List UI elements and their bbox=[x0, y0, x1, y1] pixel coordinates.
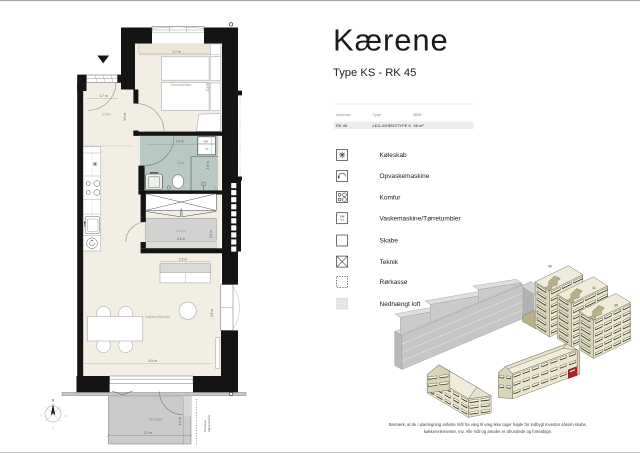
svg-text:Køleskab: Køleskab bbox=[380, 152, 407, 159]
svg-text:3.5 m: 3.5 m bbox=[123, 113, 127, 121]
svg-text:4.5 m: 4.5 m bbox=[149, 359, 157, 363]
svg-text:Opvaskemaskine: Opvaskemaskine bbox=[380, 173, 430, 180]
svg-text:Depot: Depot bbox=[176, 229, 186, 233]
svg-text:TT: TT bbox=[340, 219, 344, 223]
svg-text:1.7 m: 1.7 m bbox=[100, 94, 108, 98]
svg-text:Skabe: Skabe bbox=[380, 238, 399, 245]
svg-text:2.4 m: 2.4 m bbox=[177, 237, 185, 241]
svg-text:2.2 m: 2.2 m bbox=[209, 230, 213, 238]
svg-text:4.5 m: 4.5 m bbox=[210, 309, 214, 317]
svg-text:2.4 m: 2.4 m bbox=[176, 140, 184, 144]
svg-text:TT: TT bbox=[205, 147, 209, 151]
svg-text:Kærene: Kærene bbox=[333, 23, 449, 58]
svg-text:Terrasse: Terrasse bbox=[149, 418, 163, 422]
svg-text:S: S bbox=[52, 426, 54, 430]
svg-text:LEJLIGHEDSTYPE K: LEJLIGHEDSTYPE K bbox=[373, 123, 412, 128]
svg-text:V: V bbox=[40, 414, 42, 418]
svg-text:Bemærk, at de i plantegning an: Bemærk, at de i plantegning anførte mål … bbox=[389, 422, 587, 427]
svg-text:Entré: Entré bbox=[102, 113, 111, 117]
svg-text:2.7 m: 2.7 m bbox=[173, 50, 181, 54]
svg-text:2.5 m: 2.5 m bbox=[179, 257, 187, 261]
svg-text:Adresse: Adresse bbox=[336, 112, 351, 117]
svg-text:Vaskemaskine/Tørretumbler: Vaskemaskine/Tørretumbler bbox=[380, 215, 462, 222]
svg-text:VM: VM bbox=[203, 140, 208, 144]
svg-text:Bad: Bad bbox=[178, 161, 184, 165]
svg-text:Soveværelse: Soveværelse bbox=[171, 83, 192, 87]
svg-text:Ø: Ø bbox=[64, 414, 66, 418]
svg-text:66 m²: 66 m² bbox=[414, 123, 425, 128]
svg-text:39: 39 bbox=[614, 304, 618, 308]
svg-text:Type: Type bbox=[373, 112, 382, 117]
svg-text:40: 40 bbox=[548, 265, 552, 269]
svg-text:afgrænsning: afgrænsning bbox=[207, 415, 211, 432]
svg-text:Rørkasse: Rørkasse bbox=[380, 279, 408, 286]
svg-text:41: 41 bbox=[592, 286, 596, 290]
svg-text:køkkenelementer, mv. Alle mål: køkkenelementer, mv. Alle mål og arealer… bbox=[424, 429, 552, 434]
svg-text:Teknik: Teknik bbox=[380, 259, 399, 266]
svg-text:2.9 m: 2.9 m bbox=[206, 83, 210, 91]
svg-text:3.8 m: 3.8 m bbox=[206, 161, 210, 169]
svg-text:2.7 m: 2.7 m bbox=[144, 431, 152, 435]
svg-text:1.5 m: 1.5 m bbox=[178, 417, 182, 425]
svg-text:RK 45: RK 45 bbox=[336, 123, 348, 128]
svg-text:Køkken/Ophold: Køkken/Ophold bbox=[146, 315, 171, 319]
svg-text:Nedhængt loft: Nedhængt loft bbox=[380, 301, 421, 308]
svg-text:N: N bbox=[52, 399, 55, 403]
svg-text:Komfur: Komfur bbox=[380, 194, 402, 201]
svg-text:Type KS - RK 45: Type KS - RK 45 bbox=[333, 67, 416, 79]
svg-text:BBR: BBR bbox=[414, 112, 422, 117]
